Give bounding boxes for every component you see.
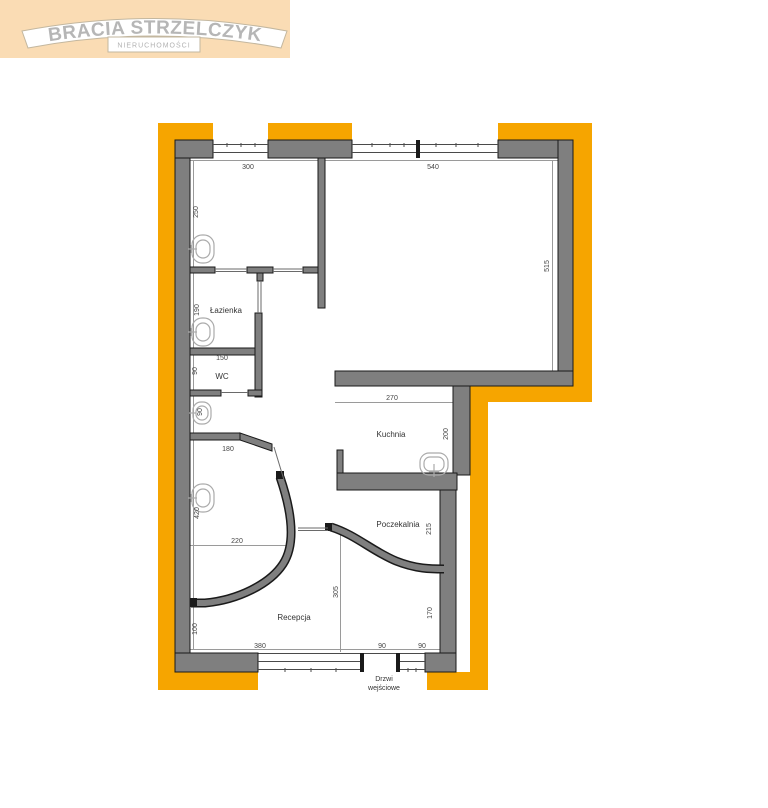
wall [190, 390, 221, 396]
dimension-label: 540 [427, 164, 439, 171]
dimension-lines [190, 160, 558, 654]
dimension-label: 420 [194, 507, 201, 519]
wall [175, 653, 258, 672]
outline-segment [158, 123, 175, 690]
dimension-label: 250 [193, 206, 200, 218]
dimension-label: 305 [333, 586, 340, 598]
dimension-label: 90 [192, 367, 199, 375]
dimension-label: 90 [378, 643, 386, 650]
wall [268, 140, 352, 158]
outline-segment [573, 123, 592, 402]
door-jamb [396, 653, 400, 672]
dimension-label: 515 [544, 260, 551, 272]
dimension-label: 90 [197, 408, 204, 416]
logo: BRACIA STRZELCZYK NIERUCHOMOŚCI [0, 0, 290, 58]
wall [175, 140, 213, 158]
entrance-label: Drzwi wejściowe [367, 676, 400, 692]
room-label-lazienka: Łazienka [210, 306, 243, 315]
wall [190, 348, 262, 355]
sink-icon [188, 318, 214, 346]
window-divider [416, 140, 420, 158]
dimension-label: 100 [192, 623, 199, 635]
room-label-recepcja: Recepcja [277, 613, 311, 622]
dimension-label: 90 [418, 643, 426, 650]
room-label-wc: WC [215, 372, 229, 381]
dimension-label: 220 [231, 538, 243, 545]
wall-end-cap [325, 523, 332, 531]
floorplan-canvas: BRACIA STRZELCZYK NIERUCHOMOŚCI [0, 0, 768, 803]
dimension-labels: 300 540 250 515 190 150 90 90 270 200 18… [192, 164, 551, 650]
dimension-label: 190 [194, 304, 201, 316]
wall [425, 653, 456, 672]
dimension-label: 170 [427, 607, 434, 619]
sink-icon [420, 453, 448, 477]
wall [257, 273, 263, 281]
outline-segment [470, 402, 488, 690]
curved-walls [190, 471, 444, 607]
wall [318, 158, 325, 308]
wall [453, 386, 470, 475]
dimension-label: 180 [222, 446, 234, 453]
wall [337, 450, 343, 473]
dimension-label: 150 [216, 355, 228, 362]
room-label-poczekalnia: Poczekalnia [376, 520, 420, 529]
outline-segment [467, 386, 592, 402]
wall [440, 488, 456, 672]
wall [558, 140, 573, 386]
wall [303, 267, 319, 273]
room-label-kuchnia: Kuchnia [377, 430, 406, 439]
dimension-label: 270 [386, 395, 398, 402]
wall [248, 390, 262, 396]
door-jamb [360, 653, 364, 672]
dimension-label: 200 [443, 428, 450, 440]
wall-diagonal [240, 433, 272, 451]
outline-highlight [158, 123, 592, 690]
entrance-label-line2: wejściowe [367, 685, 400, 692]
outline-segment [427, 672, 488, 690]
dimension-label: 215 [426, 523, 433, 535]
wall [255, 313, 262, 397]
entrance-label-line1: Drzwi [375, 676, 393, 683]
wall [247, 267, 273, 273]
wall [190, 433, 240, 440]
wall [190, 267, 215, 273]
radiator-icon [188, 484, 214, 512]
outline-segment [158, 123, 213, 140]
outline-segment [268, 123, 352, 140]
wall [175, 140, 190, 672]
outline-segment [158, 672, 258, 690]
wall [335, 371, 573, 386]
dimension-label: 300 [242, 164, 254, 171]
logo-subtitle-text: NIERUCHOMOŚCI [117, 41, 190, 50]
radiator-icon [188, 235, 214, 263]
dimension-label: 380 [254, 643, 266, 650]
wall-end-cap [190, 598, 197, 607]
